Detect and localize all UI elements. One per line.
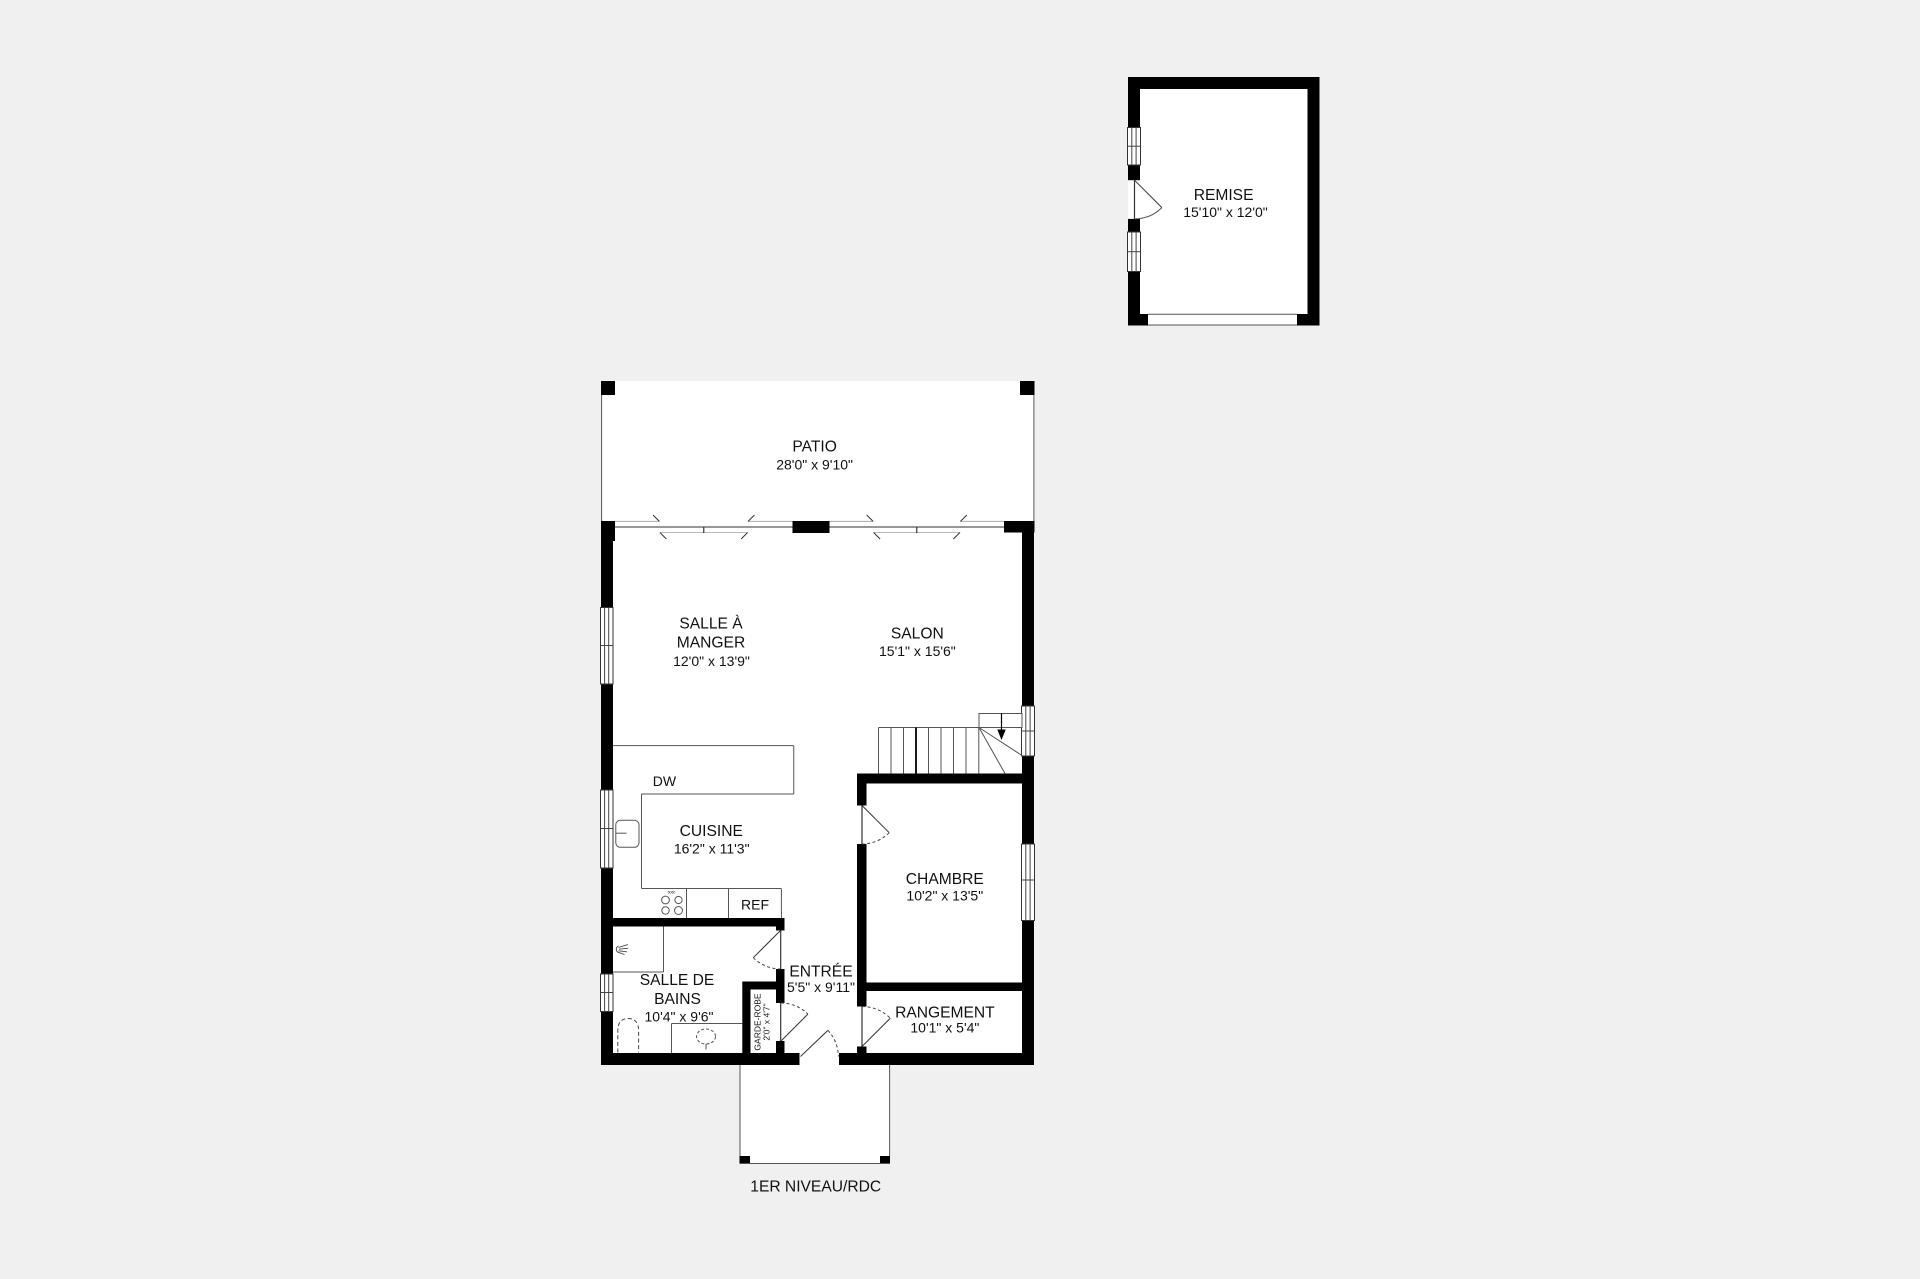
svg-text:28'0" x 9'10": 28'0" x 9'10" [776,457,853,473]
svg-text:2'0" x 4'7": 2'0" x 4'7" [762,1003,772,1040]
svg-text:DW: DW [653,773,677,789]
svg-text:10'1" x 5'4": 10'1" x 5'4" [910,1020,979,1036]
svg-text:PATIO: PATIO [792,439,836,456]
svg-text:5'5" x 9'11": 5'5" x 9'11" [787,979,855,995]
svg-text:SALLE DE: SALLE DE [640,972,715,989]
svg-text:SALLE À: SALLE À [679,614,743,633]
svg-text:REF: REF [741,897,769,913]
svg-text:BAINS: BAINS [654,991,701,1008]
svg-text:15'10" x 12'0": 15'10" x 12'0" [1183,204,1268,220]
svg-text:15'1" x 15'6": 15'1" x 15'6" [879,643,956,659]
svg-text:10'2" x 13'5": 10'2" x 13'5" [906,888,983,904]
svg-text:CHAMBRE: CHAMBRE [906,871,984,888]
svg-text:1ER NIVEAU/RDC: 1ER NIVEAU/RDC [750,1179,881,1196]
svg-text:CUISINE: CUISINE [680,823,743,840]
svg-text:12'0" x 13'9": 12'0" x 13'9" [673,653,750,669]
svg-text:ENTRÉE: ENTRÉE [789,962,852,981]
svg-text:16'2" x 11'3": 16'2" x 11'3" [674,841,750,857]
svg-text:SALON: SALON [891,626,944,643]
svg-text:REMISE: REMISE [1194,187,1254,204]
svg-text:10'4" x 9'6": 10'4" x 9'6" [645,1009,714,1025]
svg-text:MANGER: MANGER [677,635,745,652]
svg-text:6060: 6060 [668,891,676,895]
